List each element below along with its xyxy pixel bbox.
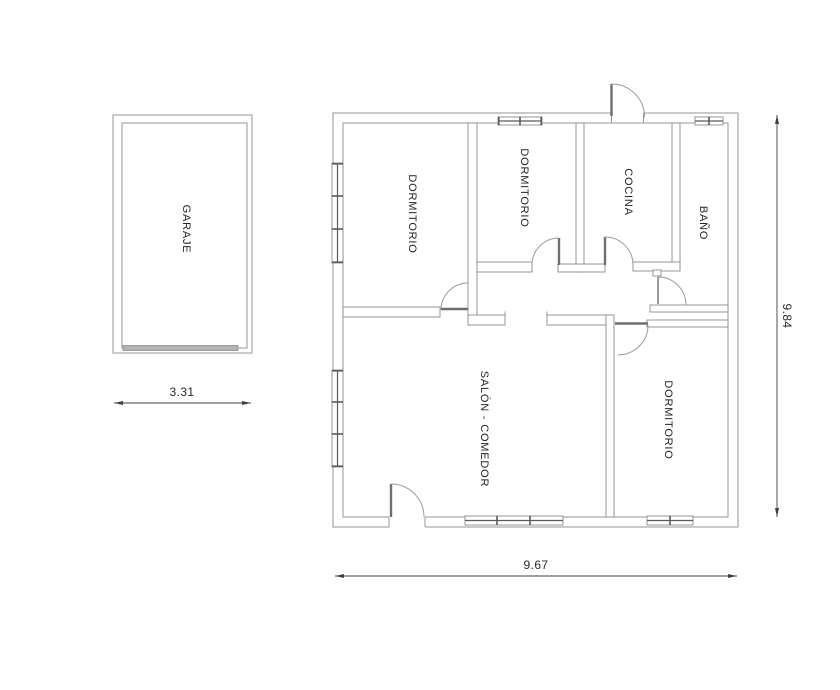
garage: GARAJE bbox=[113, 115, 252, 353]
room-label-dormitorio-3: DORMITORIO bbox=[662, 380, 674, 459]
room-label-dormitorio-1: DORMITORIO bbox=[406, 174, 418, 253]
wall-bano-bottom bbox=[650, 305, 728, 312]
room-label-garaje: GARAJE bbox=[180, 205, 192, 254]
dimension-garage-width: 3.31 bbox=[114, 385, 251, 405]
floor-plan-drawing: GARAJE bbox=[0, 0, 840, 690]
dimension-plan-height: 9.84 bbox=[775, 115, 794, 517]
wall-bano-door-stub bbox=[653, 270, 661, 276]
garage-width-value: 3.31 bbox=[170, 385, 195, 399]
wall-salon-top-left bbox=[468, 315, 505, 325]
plan-width-value: 9.67 bbox=[524, 558, 549, 572]
wall-dorm1-bottom bbox=[343, 307, 440, 317]
wall-dorm1-dorm2 bbox=[468, 123, 477, 325]
window-dorm2-top bbox=[498, 117, 542, 125]
window-dorm1-left bbox=[332, 163, 343, 263]
wall-dorm2-cocina bbox=[576, 123, 584, 272]
room-label-cocina: COCINA bbox=[622, 168, 634, 216]
dimension-plan-width: 9.67 bbox=[335, 558, 737, 578]
wall-dorm2-bottom bbox=[477, 262, 532, 272]
room-label-salon-comedor: SALÓN - COMEDOR bbox=[478, 371, 491, 488]
window-salon-bottom bbox=[465, 516, 563, 525]
wall-dorm3-top bbox=[647, 320, 728, 327]
window-dorm3-bottom bbox=[647, 516, 693, 525]
opening-entry-top bbox=[612, 111, 644, 123]
room-label-dormitorio-2: DORMITORIO bbox=[518, 148, 530, 227]
floor-plan-page: GARAJE bbox=[0, 0, 840, 690]
wall-salon-dorm3 bbox=[606, 315, 614, 517]
dim-arrow-left bbox=[114, 401, 123, 405]
wall-hall-center-stub bbox=[558, 264, 605, 272]
wall-salon-top-right bbox=[547, 315, 606, 325]
dim-arrow-bottom bbox=[775, 508, 779, 517]
window-bano-top bbox=[695, 117, 723, 125]
dim-arrow-right bbox=[242, 401, 251, 405]
room-label-bano: BAÑO bbox=[697, 206, 710, 240]
window-salon-left bbox=[332, 370, 343, 467]
main-plan-walls bbox=[333, 111, 738, 529]
dim-arrow-right bbox=[728, 574, 737, 578]
dim-arrow-top bbox=[775, 115, 779, 124]
plan-height-value: 9.84 bbox=[780, 304, 794, 329]
dim-arrow-left bbox=[335, 574, 344, 578]
wall-cocina-bano bbox=[672, 123, 680, 270]
opening-salon-door bbox=[389, 516, 425, 529]
garage-door bbox=[123, 346, 238, 351]
